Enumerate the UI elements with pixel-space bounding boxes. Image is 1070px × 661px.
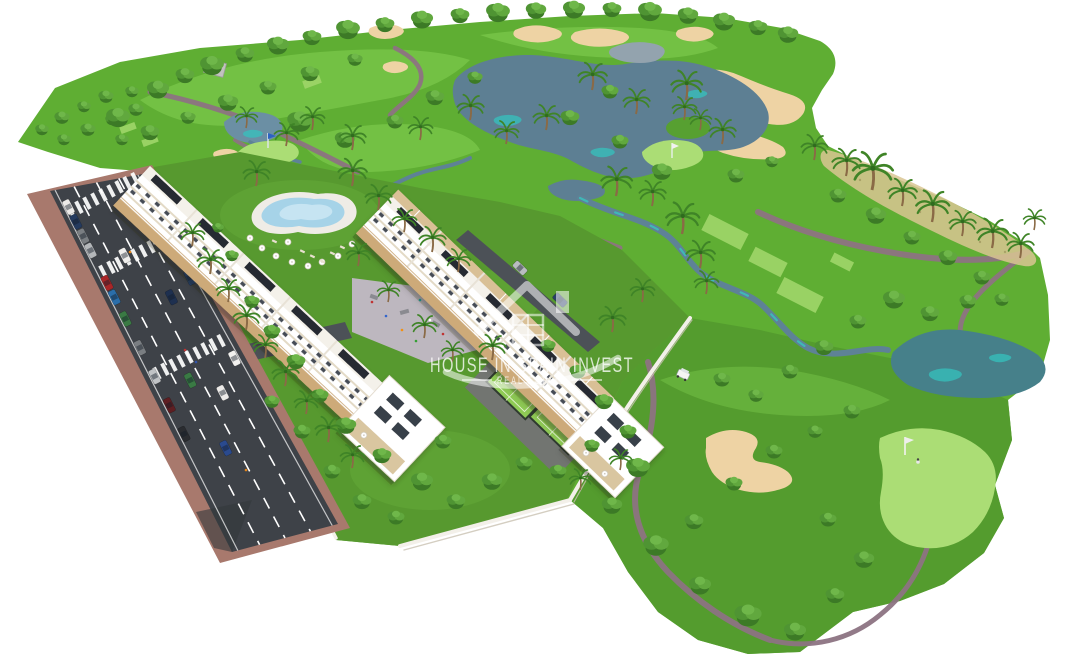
aerial-render-page: HOUSE IN SPAIN INVEST REAL ESTATE: [0, 0, 1070, 661]
golfer: [916, 460, 920, 464]
aerial-render: HOUSE IN SPAIN INVEST REAL ESTATE: [0, 0, 1070, 661]
watermark-title: HOUSE IN SPAIN INVEST: [430, 354, 634, 377]
lake-island: [666, 117, 710, 139]
watermark-subtitle: REAL ESTATE: [497, 375, 567, 387]
